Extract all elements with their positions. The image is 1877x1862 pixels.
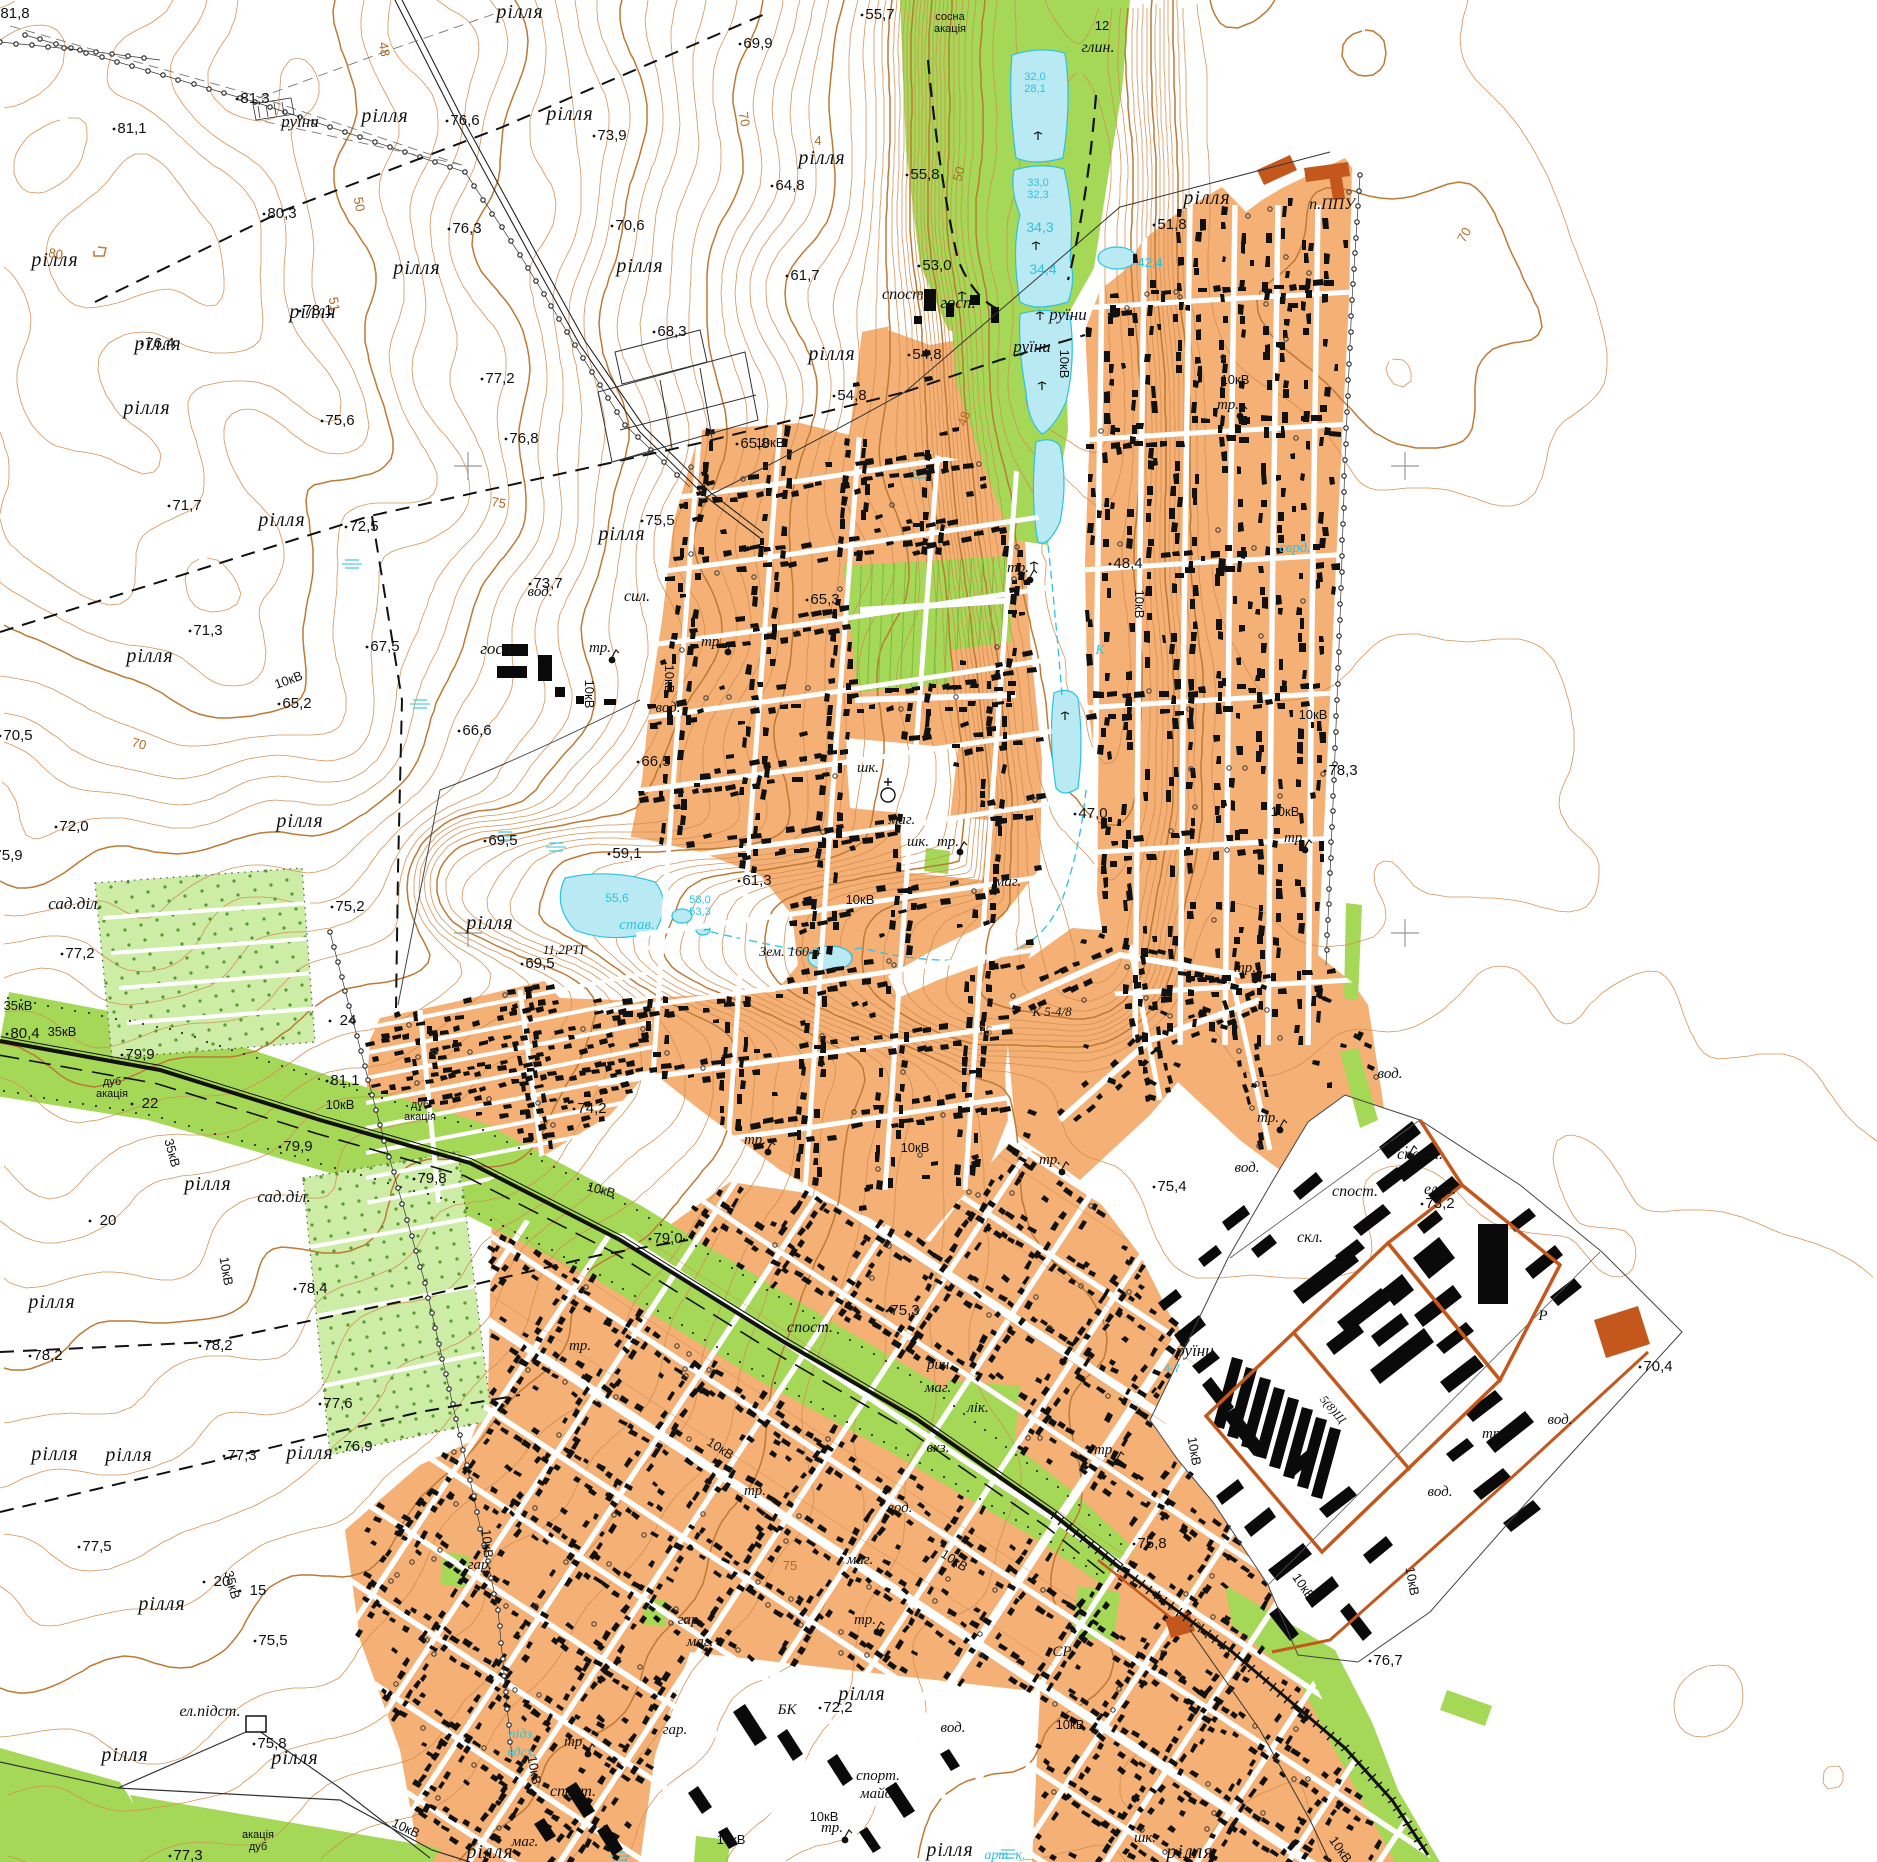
svg-text:32,3: 32,3: [1027, 189, 1048, 201]
svg-text:госп.: госп.: [480, 639, 515, 658]
svg-text:58,0: 58,0: [689, 894, 710, 906]
svg-text:дуб: дуб: [103, 1076, 121, 1088]
svg-text:61,3: 61,3: [742, 872, 771, 889]
svg-text:тр.: тр.: [1094, 1442, 1116, 1458]
svg-text:77,3: 77,3: [173, 1847, 202, 1862]
svg-text:61,7: 61,7: [790, 267, 819, 284]
svg-text:68,3: 68,3: [657, 323, 686, 340]
svg-text:маг.: маг.: [994, 874, 1021, 890]
svg-text:тр.: тр.: [1217, 397, 1239, 413]
svg-text:70,5: 70,5: [3, 727, 32, 744]
svg-text:76,9: 76,9: [343, 1438, 372, 1455]
svg-text:тр.: тр.: [1007, 560, 1029, 576]
svg-text:80: 80: [47, 245, 64, 262]
svg-text:маг.: маг.: [924, 1380, 951, 1396]
svg-text:74,2: 74,2: [577, 1100, 606, 1117]
svg-text:78,3: 78,3: [1328, 762, 1357, 779]
svg-text:53,0: 53,0: [922, 257, 951, 274]
svg-text:69,5: 69,5: [488, 832, 517, 849]
svg-text:4-7: 4-7: [1164, 1363, 1180, 1375]
svg-text:10кВ: 10кВ: [901, 1140, 930, 1155]
svg-text:28,1: 28,1: [1024, 83, 1045, 95]
svg-text:4: 4: [814, 133, 821, 148]
svg-text:35кВ: 35кВ: [4, 998, 33, 1013]
svg-text:вод.: вод.: [888, 1500, 913, 1516]
svg-text:75,5: 75,5: [258, 1632, 287, 1649]
svg-text:рілля: рілля: [1181, 187, 1230, 209]
svg-text:70,4: 70,4: [1643, 1358, 1672, 1375]
svg-text:рілля: рілля: [494, 1, 543, 23]
svg-text:32,0: 32,0: [1024, 71, 1045, 83]
svg-text:75,5: 75,5: [645, 512, 674, 529]
svg-text:Р: Р: [1157, 1648, 1167, 1664]
svg-text:вод.: вод.: [1235, 1160, 1260, 1176]
svg-text:глин.: глин.: [1082, 39, 1115, 56]
svg-text:ел.підст.: ел.підст.: [179, 1703, 240, 1720]
svg-text:73,7: 73,7: [533, 575, 562, 592]
svg-text:20: 20: [100, 1212, 117, 1229]
svg-text:78,4: 78,4: [298, 1280, 327, 1297]
svg-text:сврд.: сврд.: [1279, 540, 1311, 556]
svg-text:тр.: тр.: [1039, 1152, 1061, 1168]
svg-text:55,7: 55,7: [865, 6, 894, 23]
svg-text:тр.: тр.: [744, 1483, 766, 1499]
svg-text:66,6: 66,6: [462, 722, 491, 739]
svg-text:75,8: 75,8: [1137, 1535, 1166, 1552]
svg-text:тр.: тр.: [937, 834, 959, 850]
svg-text:76,3: 76,3: [452, 220, 481, 237]
svg-text:76,8: 76,8: [509, 430, 538, 447]
svg-text:тр.: тр.: [1482, 1426, 1504, 1442]
svg-text:рілля: рілля: [182, 1173, 231, 1195]
svg-text:тр.: тр.: [854, 1612, 876, 1628]
svg-text:53,3: 53,3: [689, 906, 710, 918]
svg-text:сад.діл.: сад.діл.: [48, 894, 101, 913]
svg-text:55,8: 55,8: [910, 166, 939, 183]
svg-text:76,7: 76,7: [1373, 1652, 1402, 1669]
svg-text:акація: акація: [96, 1088, 128, 1100]
svg-text:руїни: руїни: [1012, 337, 1050, 356]
svg-text:дуб: дуб: [249, 1841, 267, 1853]
svg-text:гар.: гар.: [468, 1557, 493, 1573]
svg-text:54,8: 54,8: [837, 387, 866, 404]
svg-text:71,3: 71,3: [193, 622, 222, 639]
svg-text:рілля: рілля: [103, 1444, 152, 1466]
svg-text:10кВ: 10кВ: [326, 1097, 355, 1112]
svg-text:тр.: тр.: [564, 1734, 586, 1750]
svg-text:тр.: тр.: [1234, 960, 1256, 976]
svg-text:67,5: 67,5: [370, 638, 399, 655]
svg-text:10кВ: 10кВ: [1271, 804, 1300, 819]
svg-text:78,2: 78,2: [203, 1337, 232, 1354]
svg-text:75: 75: [490, 494, 507, 511]
svg-text:руїни: руїни: [1048, 305, 1086, 324]
svg-text:акація: акація: [934, 23, 966, 35]
svg-text:сил.: сил.: [624, 588, 650, 605]
svg-text:76,6: 76,6: [450, 112, 479, 129]
svg-text:72,2: 72,2: [823, 1699, 852, 1716]
svg-text:маг.: маг.: [686, 1634, 713, 1650]
svg-text:12: 12: [1095, 18, 1109, 33]
svg-text:10кВ: 10кВ: [846, 892, 875, 907]
svg-text:50: 50: [351, 196, 368, 213]
svg-text:гар.: гар.: [663, 1722, 688, 1738]
svg-text:вод.: вод.: [656, 700, 681, 716]
svg-text:72,5: 72,5: [349, 518, 378, 535]
svg-text:рілля: рілля: [1164, 1841, 1213, 1862]
svg-text:73,9: 73,9: [597, 127, 626, 144]
svg-text:рілля: рілля: [136, 1593, 185, 1615]
svg-text:47,0: 47,0: [1078, 805, 1107, 822]
svg-text:55,6: 55,6: [605, 891, 629, 905]
svg-text:рілля: рілля: [806, 343, 855, 365]
svg-text:10кВ: 10кВ: [1132, 590, 1147, 619]
svg-text:77,3: 77,3: [227, 1447, 256, 1464]
svg-text:тр.: тр.: [744, 1132, 766, 1148]
svg-text:рілля: рілля: [924, 1839, 973, 1861]
svg-text:24: 24: [340, 1012, 357, 1029]
svg-text:33,0: 33,0: [1027, 177, 1048, 189]
svg-text:81,1: 81,1: [117, 120, 146, 137]
svg-text:гар.: гар.: [678, 1612, 703, 1628]
svg-text:Зем. 160-4: Зем. 160-4: [759, 945, 820, 960]
svg-text:10кВ: 10кВ: [582, 680, 597, 709]
svg-text:п.ППУ: п.ППУ: [1309, 196, 1357, 213]
svg-text:10кВ: 10кВ: [662, 665, 677, 694]
svg-text:77,6: 77,6: [323, 1395, 352, 1412]
svg-text:34,4: 34,4: [1029, 261, 1056, 277]
svg-text:рілля: рілля: [124, 645, 173, 667]
svg-text:рілля: рілля: [464, 1841, 513, 1862]
svg-text:шк.: шк.: [1134, 1830, 1156, 1846]
svg-text:75,9: 75,9: [0, 847, 23, 864]
svg-text:79,0: 79,0: [653, 1230, 682, 1247]
svg-text:вод.: вод.: [1548, 1412, 1573, 1428]
svg-text:рин.: рин.: [926, 1357, 953, 1373]
svg-text:81,8: 81,8: [0, 5, 29, 22]
svg-text:рілля: рілля: [121, 397, 170, 419]
svg-text:5: 5: [916, 288, 923, 303]
svg-text:73,2: 73,2: [1425, 1195, 1454, 1212]
svg-text:75,3: 75,3: [890, 1302, 919, 1319]
svg-text:рілля: рілля: [596, 523, 645, 545]
svg-text:вкз.: вкз.: [927, 1440, 950, 1456]
svg-text:скл.: скл.: [1297, 1229, 1323, 1246]
svg-text:10кВ: 10кВ: [479, 1529, 496, 1559]
svg-text:65,2: 65,2: [282, 695, 311, 712]
svg-text:вод.: вод.: [1428, 1484, 1453, 1500]
svg-text:сад.діл.: сад.діл.: [257, 1187, 310, 1206]
svg-text:80,4: 80,4: [10, 1025, 39, 1042]
svg-text:БК: БК: [777, 1702, 798, 1718]
svg-text:75,4: 75,4: [1157, 1178, 1186, 1195]
svg-text:75,6: 75,6: [325, 412, 354, 429]
svg-text:75: 75: [783, 1558, 797, 1573]
svg-text:арт. к.: арт. к.: [984, 1848, 1025, 1862]
svg-text:10кВ: 10кВ: [1056, 1717, 1085, 1732]
svg-text:22: 22: [142, 1095, 159, 1112]
svg-text:шк.: шк.: [907, 834, 929, 850]
svg-text:рілля: рілля: [284, 1442, 333, 1464]
svg-text:76,4: 76,4: [145, 335, 174, 352]
svg-text:тр.: тр.: [589, 640, 611, 656]
svg-text:10кВ: 10кВ: [810, 1809, 839, 1824]
svg-text:К 5-4/8: К 5-4/8: [1031, 1004, 1072, 1019]
svg-text:80,3: 80,3: [267, 205, 296, 222]
svg-text:34,3: 34,3: [1026, 219, 1053, 235]
svg-text:акація: акація: [242, 1829, 274, 1841]
svg-text:рілля: рілля: [614, 255, 663, 277]
svg-text:рілля: рілля: [796, 147, 845, 169]
svg-text:вод.: вод.: [1378, 1066, 1403, 1082]
svg-text:підз.: підз.: [509, 1727, 536, 1742]
svg-text:10кВ: 10кВ: [717, 1832, 746, 1847]
svg-text:70: 70: [736, 111, 753, 128]
svg-text:51: 51: [326, 296, 343, 313]
svg-text:тр.: тр.: [1257, 1110, 1279, 1126]
svg-text:рілля: рілля: [544, 103, 593, 125]
svg-text:маг.: маг.: [888, 812, 915, 828]
svg-text:70,6: 70,6: [615, 217, 644, 234]
svg-text:став.: став.: [619, 917, 654, 933]
svg-text:спост.: спост.: [550, 1783, 596, 1800]
svg-text:тр.: тр.: [701, 634, 723, 650]
svg-text:51,8: 51,8: [1157, 216, 1186, 233]
svg-text:госп.: госп.: [940, 293, 975, 312]
svg-text:спост.: спост.: [1332, 1183, 1378, 1200]
svg-text:15: 15: [250, 1582, 267, 1599]
svg-text:К: К: [1094, 643, 1105, 658]
svg-text:рілля: рілля: [359, 105, 408, 127]
svg-text:10кВ: 10кВ: [756, 435, 785, 450]
svg-text:77,2: 77,2: [65, 945, 94, 962]
svg-text:75: 75: [978, 1022, 994, 1038]
svg-text:вод.: вод.: [941, 1720, 966, 1736]
svg-text:59,1: 59,1: [612, 845, 641, 862]
svg-text:руїни: руїни: [280, 112, 318, 131]
svg-text:78,2: 78,2: [33, 1347, 62, 1364]
svg-text:69,5: 69,5: [525, 955, 554, 972]
svg-text:77,2: 77,2: [485, 370, 514, 387]
svg-text:рілля: рілля: [26, 1291, 75, 1313]
svg-text:шк.: шк.: [857, 760, 879, 776]
svg-text:рілля: рілля: [99, 1744, 148, 1766]
svg-text:рілля: рілля: [29, 1443, 78, 1465]
svg-text:10кВ: 10кВ: [1221, 372, 1250, 387]
svg-text:тр.: тр.: [1387, 1136, 1409, 1152]
svg-text:66,5: 66,5: [641, 753, 670, 770]
svg-text:спост.: спост.: [787, 1319, 833, 1336]
svg-text:75,2: 75,2: [335, 898, 364, 915]
svg-text:42,4: 42,4: [1137, 255, 1162, 270]
svg-text:75,8: 75,8: [257, 1735, 286, 1752]
svg-text:тр.: тр.: [1284, 830, 1306, 846]
svg-text:48,4: 48,4: [1113, 555, 1142, 572]
svg-text:64,8: 64,8: [775, 177, 804, 194]
svg-text:руїни: руїни: [1175, 1341, 1213, 1360]
svg-text:71,7: 71,7: [172, 497, 201, 514]
svg-text:Р: Р: [1537, 1308, 1547, 1324]
svg-text:79,9: 79,9: [283, 1138, 312, 1155]
svg-text:54,8: 54,8: [912, 346, 941, 363]
svg-text:акація: акація: [404, 1111, 436, 1123]
svg-text:спорт.: спорт.: [856, 1768, 900, 1784]
svg-text:65,3: 65,3: [810, 591, 839, 608]
svg-text:81,1: 81,1: [330, 1072, 359, 1089]
svg-text:рілля: рілля: [464, 912, 513, 934]
svg-text:сосна: сосна: [935, 11, 965, 23]
svg-text:СР: СР: [1052, 1644, 1071, 1660]
svg-text:79,8: 79,8: [417, 1170, 446, 1187]
svg-text:рілля: рілля: [256, 509, 305, 531]
svg-text:лік.: лік.: [966, 1400, 988, 1416]
svg-text:10кВ: 10кВ: [1057, 350, 1072, 379]
svg-text:35кВ: 35кВ: [48, 1024, 77, 1039]
svg-text:72,0: 72,0: [59, 818, 88, 835]
svg-text:79,9: 79,9: [125, 1046, 154, 1063]
svg-text:маг.: маг.: [511, 1834, 538, 1850]
svg-text:тр.: тр.: [569, 1338, 591, 1354]
svg-text:10кВ: 10кВ: [1299, 707, 1328, 722]
svg-text:дуб: дуб: [411, 1099, 429, 1111]
svg-text:рілля: рілля: [274, 810, 323, 832]
svg-text:48: 48: [376, 41, 393, 58]
svg-text:маг.: маг.: [846, 1552, 873, 1568]
svg-text:рілля: рілля: [391, 257, 440, 279]
svg-text:69,9: 69,9: [743, 35, 772, 52]
svg-text:81,3: 81,3: [240, 90, 269, 107]
svg-text:майд.: майд.: [859, 1786, 896, 1802]
svg-text:77,5: 77,5: [82, 1538, 111, 1555]
